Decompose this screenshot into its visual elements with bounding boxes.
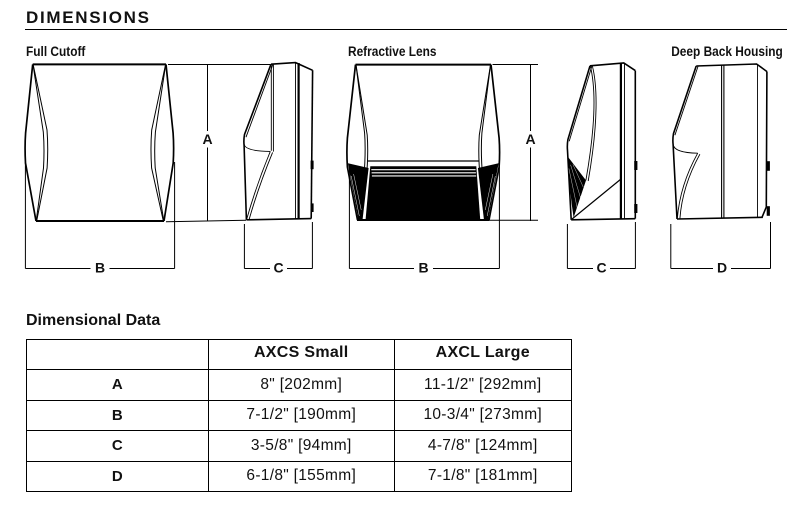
svg-text:A: A	[525, 131, 535, 147]
svg-text:B: B	[95, 260, 105, 276]
svg-text:C: C	[273, 260, 283, 276]
svg-text:D: D	[717, 260, 727, 276]
svg-text:A: A	[202, 131, 212, 147]
svg-text:B: B	[418, 260, 428, 276]
svg-text:C: C	[596, 260, 606, 276]
